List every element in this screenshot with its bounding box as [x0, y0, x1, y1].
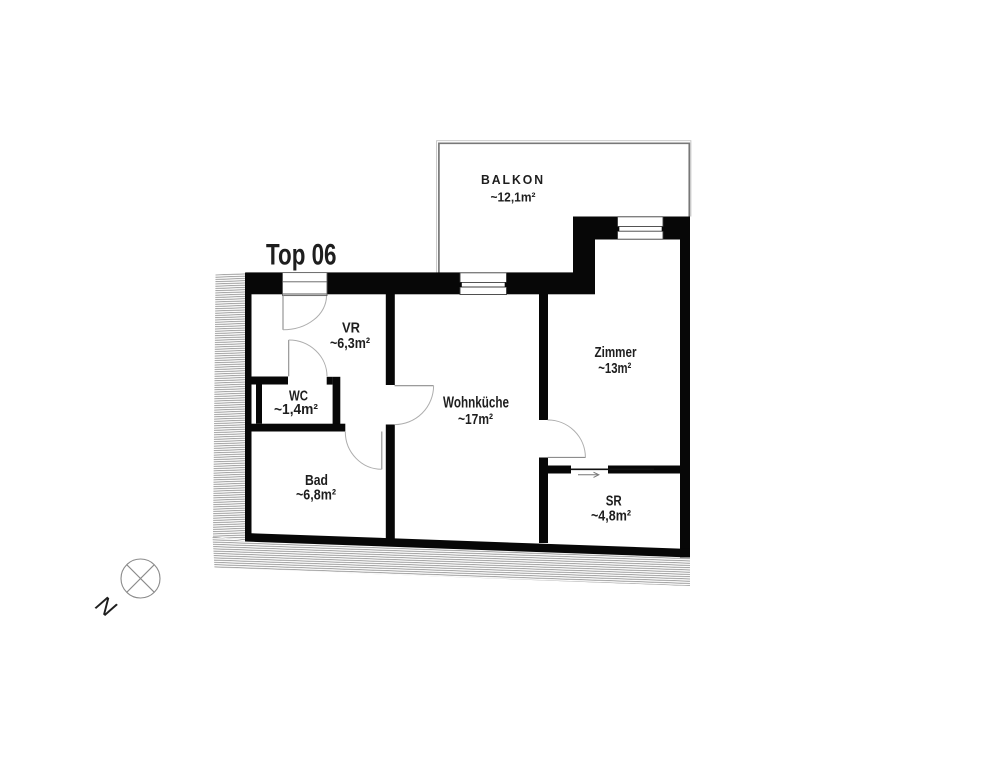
svg-text:~17m²: ~17m²: [458, 411, 493, 428]
svg-text:~6,8m²: ~6,8m²: [296, 487, 336, 504]
svg-text:~13m²: ~13m²: [598, 360, 631, 377]
svg-text:~12,1m²: ~12,1m²: [491, 190, 537, 205]
svg-text:Wohnküche: Wohnküche: [443, 395, 509, 412]
svg-text:Zimmer: Zimmer: [595, 344, 637, 361]
svg-text:~4,8m²: ~4,8m²: [591, 508, 631, 525]
svg-text:BALKON: BALKON: [481, 173, 545, 187]
svg-text:Top 06: Top 06: [266, 239, 337, 272]
svg-text:~6,3m²: ~6,3m²: [330, 335, 370, 352]
svg-text:~1,4m²: ~1,4m²: [274, 402, 318, 418]
